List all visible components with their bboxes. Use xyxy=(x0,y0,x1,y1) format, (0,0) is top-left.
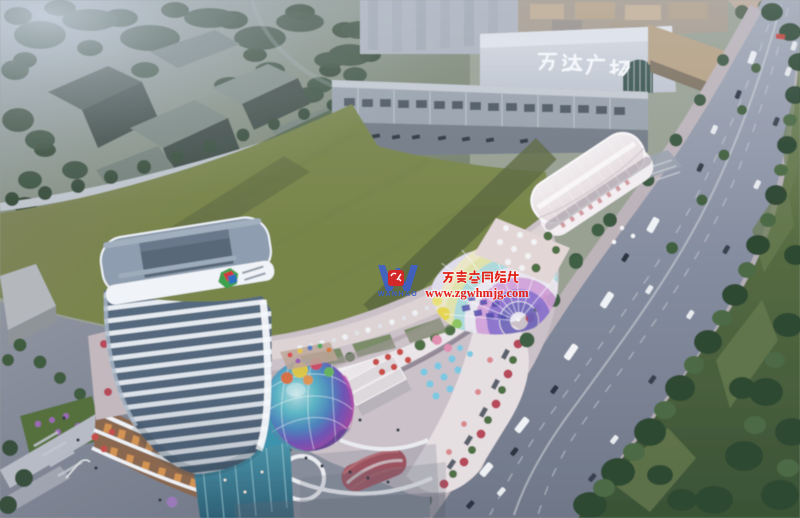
svg-text:www.zgwhmjg.com: www.zgwhmjg.com xyxy=(425,286,529,300)
svg-text:WANHAO: WANHAO xyxy=(378,291,418,298)
